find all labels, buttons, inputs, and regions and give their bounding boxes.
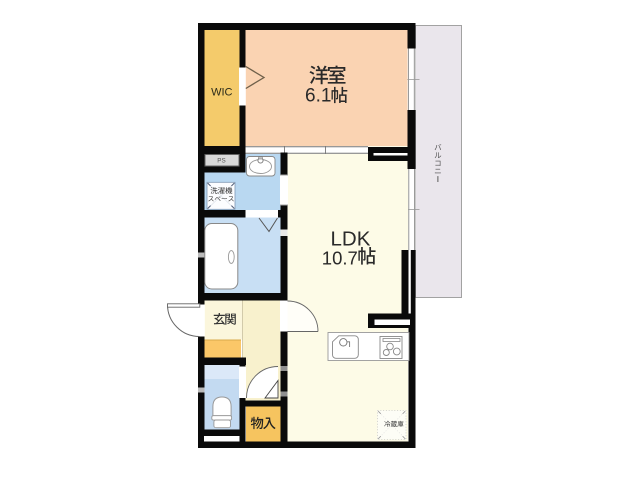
svg-text:WIC: WIC xyxy=(211,87,232,99)
svg-text:10.7: 10.7 xyxy=(322,247,358,268)
svg-text:6.1: 6.1 xyxy=(305,86,331,107)
svg-text:PS: PS xyxy=(217,158,225,165)
